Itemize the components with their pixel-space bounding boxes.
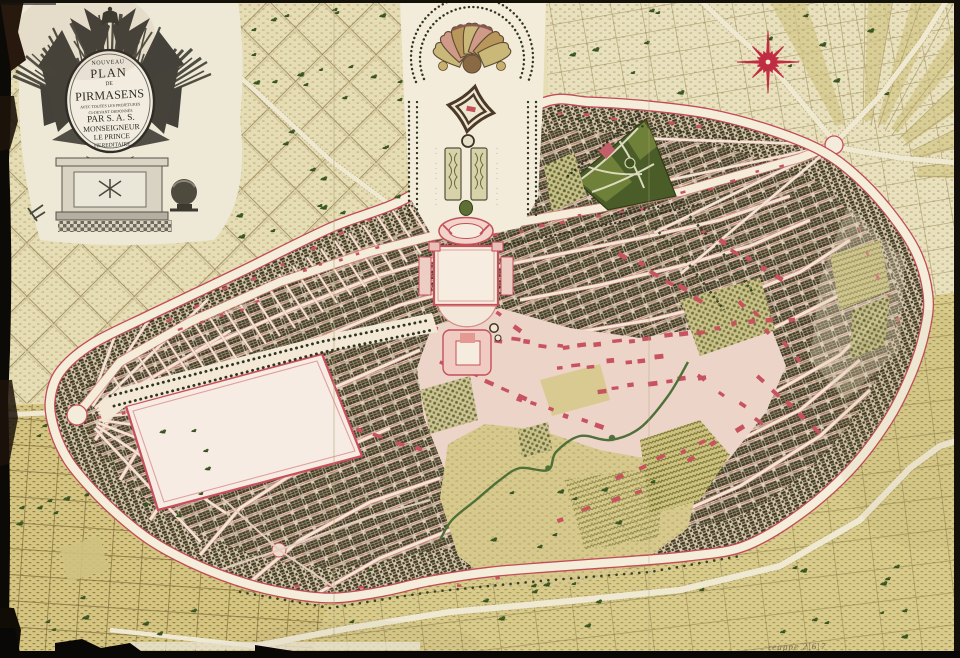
svg-text:DE: DE: [105, 81, 113, 87]
svg-text:reappe 2|6|7: reappe 2|6|7: [768, 641, 827, 652]
